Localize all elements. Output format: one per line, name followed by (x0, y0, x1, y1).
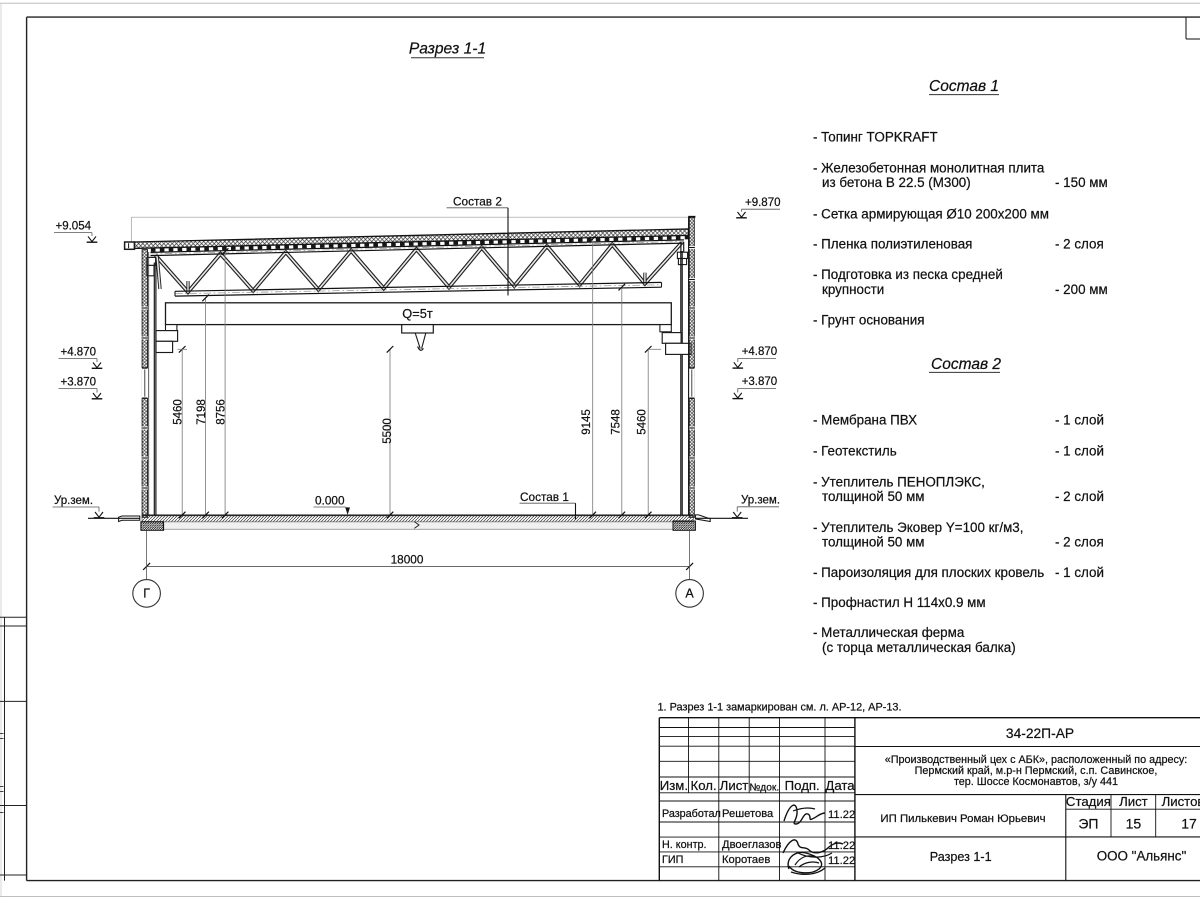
svg-text:Дата: Дата (825, 778, 855, 793)
svg-text:- Топинг TOPKRAFT: - Топинг TOPKRAFT (813, 130, 938, 145)
svg-text:+9.870: +9.870 (745, 197, 781, 209)
svg-text:+4.870: +4.870 (742, 346, 778, 358)
svg-text:тер. Шоссе Космонавтов, з/у 44: тер. Шоссе Космонавтов, з/у 441 (954, 776, 1118, 788)
svg-text:Изм.: Изм. (660, 778, 688, 793)
svg-text:А: А (685, 587, 694, 601)
svg-text:- 150 мм: - 150 мм (1055, 175, 1108, 190)
svg-text:крупности: крупности (822, 282, 884, 297)
svg-text:толщиной 50 мм: толщиной 50 мм (822, 489, 925, 504)
svg-text:- Пароизоляция для плоских кро: - Пароизоляция для плоских кровель (813, 565, 1044, 580)
svg-text:Коротаев: Коротаев (722, 854, 770, 866)
svg-text:- Утеплитель ПЕНОПЛЭКС,: - Утеплитель ПЕНОПЛЭКС, (813, 474, 985, 489)
svg-text:Листов: Листов (1162, 794, 1200, 809)
svg-text:34-22П-АР: 34-22П-АР (1006, 726, 1074, 741)
svg-text:11.22: 11.22 (828, 855, 855, 867)
svg-text:из бетона В 22.5 (М300): из бетона В 22.5 (М300) (822, 175, 971, 190)
svg-text:№док.: №док. (749, 783, 779, 794)
svg-text:ИП Пилькевич Роман Юрьевич: ИП Пилькевич Роман Юрьевич (880, 813, 1045, 825)
svg-text:9145: 9145 (581, 409, 593, 435)
svg-text:- Железобетонная монолитная п: - Железобетонная монолитная плита (813, 160, 1045, 175)
svg-text:8756: 8756 (215, 399, 227, 425)
svg-text:Кол.: Кол. (691, 778, 717, 793)
svg-text:Разработал: Разработал (662, 808, 721, 820)
svg-text:11.22: 11.22 (828, 809, 855, 821)
svg-text:7548: 7548 (610, 409, 622, 435)
svg-text:ЭП: ЭП (1078, 816, 1098, 832)
svg-text:Ур.зем.: Ур.зем. (54, 495, 93, 507)
svg-text:- 2 слой: - 2 слой (1055, 489, 1104, 504)
svg-text:- Геотекстиль: - Геотекстиль (813, 443, 897, 458)
svg-text:Н. контр.: Н. контр. (662, 839, 707, 851)
svg-text:Q=5т: Q=5т (402, 306, 433, 321)
svg-text:17: 17 (1181, 816, 1197, 832)
svg-text:11.22: 11.22 (828, 840, 855, 852)
svg-text:Разрез 1-1: Разрез 1-1 (409, 41, 486, 58)
svg-text:Двоеглазов: Двоеглазов (722, 839, 782, 851)
svg-text:ГИП: ГИП (662, 854, 683, 866)
svg-text:Подп.: Подп. (785, 778, 820, 793)
svg-text:Лист: Лист (720, 778, 749, 793)
svg-text:Стадия: Стадия (1066, 794, 1111, 809)
svg-text:(с торца металлическая балка): (с торца металлическая балка) (822, 640, 1016, 655)
svg-text:ООО "Альянс": ООО "Альянс" (1097, 849, 1187, 864)
svg-text:- Пленка полиэтиленовая: - Пленка полиэтиленовая (813, 237, 972, 252)
svg-text:5460: 5460 (637, 409, 649, 435)
svg-text:+3.870: +3.870 (61, 376, 97, 388)
svg-text:- Грунт основания: - Грунт основания (813, 312, 924, 327)
svg-text:- Профнастил Н 114х0.9 мм: - Профнастил Н 114х0.9 мм (813, 595, 986, 610)
svg-text:Состав 1: Состав 1 (520, 490, 569, 504)
svg-text:- 2 слоя: - 2 слоя (1055, 535, 1104, 550)
svg-text:- Подготовка из песка средней: - Подготовка из песка средней (813, 267, 1003, 282)
svg-text:- 2 слоя: - 2 слоя (1055, 237, 1104, 252)
svg-text:- Сетка армирующая Ø10 200х200: - Сетка армирующая Ø10 200х200 мм (813, 207, 1049, 222)
svg-text:Г: Г (143, 587, 150, 601)
svg-text:+4.870: +4.870 (61, 346, 97, 358)
svg-text:18000: 18000 (391, 553, 424, 567)
svg-text:- 1 слой: - 1 слой (1055, 443, 1104, 458)
svg-text:толщиной 50 мм: толщиной 50 мм (822, 535, 925, 550)
svg-text:Состав 2: Состав 2 (931, 356, 1001, 373)
svg-text:- 1 слой: - 1 слой (1055, 565, 1104, 580)
svg-text:Состав 2: Состав 2 (453, 194, 502, 208)
svg-text:0.000: 0.000 (315, 494, 345, 508)
svg-text:- Мембрана ПВХ: - Мембрана ПВХ (813, 412, 917, 427)
svg-text:Ур.зем.: Ур.зем. (741, 495, 780, 507)
svg-text:Лист: Лист (1119, 794, 1148, 809)
svg-text:- Утеплитель Эковер Y=100 кг/м: - Утеплитель Эковер Y=100 кг/м3, (813, 520, 1023, 535)
svg-text:5500: 5500 (382, 418, 394, 444)
svg-text:Разрез 1-1: Разрез 1-1 (930, 850, 992, 864)
svg-text:5460: 5460 (172, 399, 184, 425)
svg-text:- 200 мм: - 200 мм (1055, 282, 1108, 297)
svg-text:15: 15 (1126, 816, 1142, 832)
svg-text:+3.870: +3.870 (742, 376, 778, 388)
svg-text:Состав 1: Состав 1 (929, 78, 999, 95)
svg-text:- Металлическая ферма: - Металлическая ферма (813, 625, 965, 640)
svg-text:7198: 7198 (196, 399, 208, 425)
svg-text:Решетова: Решетова (722, 808, 774, 820)
svg-text:- 1 слой: - 1 слой (1055, 412, 1104, 427)
svg-text:+9.054: +9.054 (56, 220, 92, 232)
svg-text:1. Разрез 1-1 замаркирован см.: 1. Разрез 1-1 замаркирован см. л. АР-12,… (658, 701, 902, 713)
